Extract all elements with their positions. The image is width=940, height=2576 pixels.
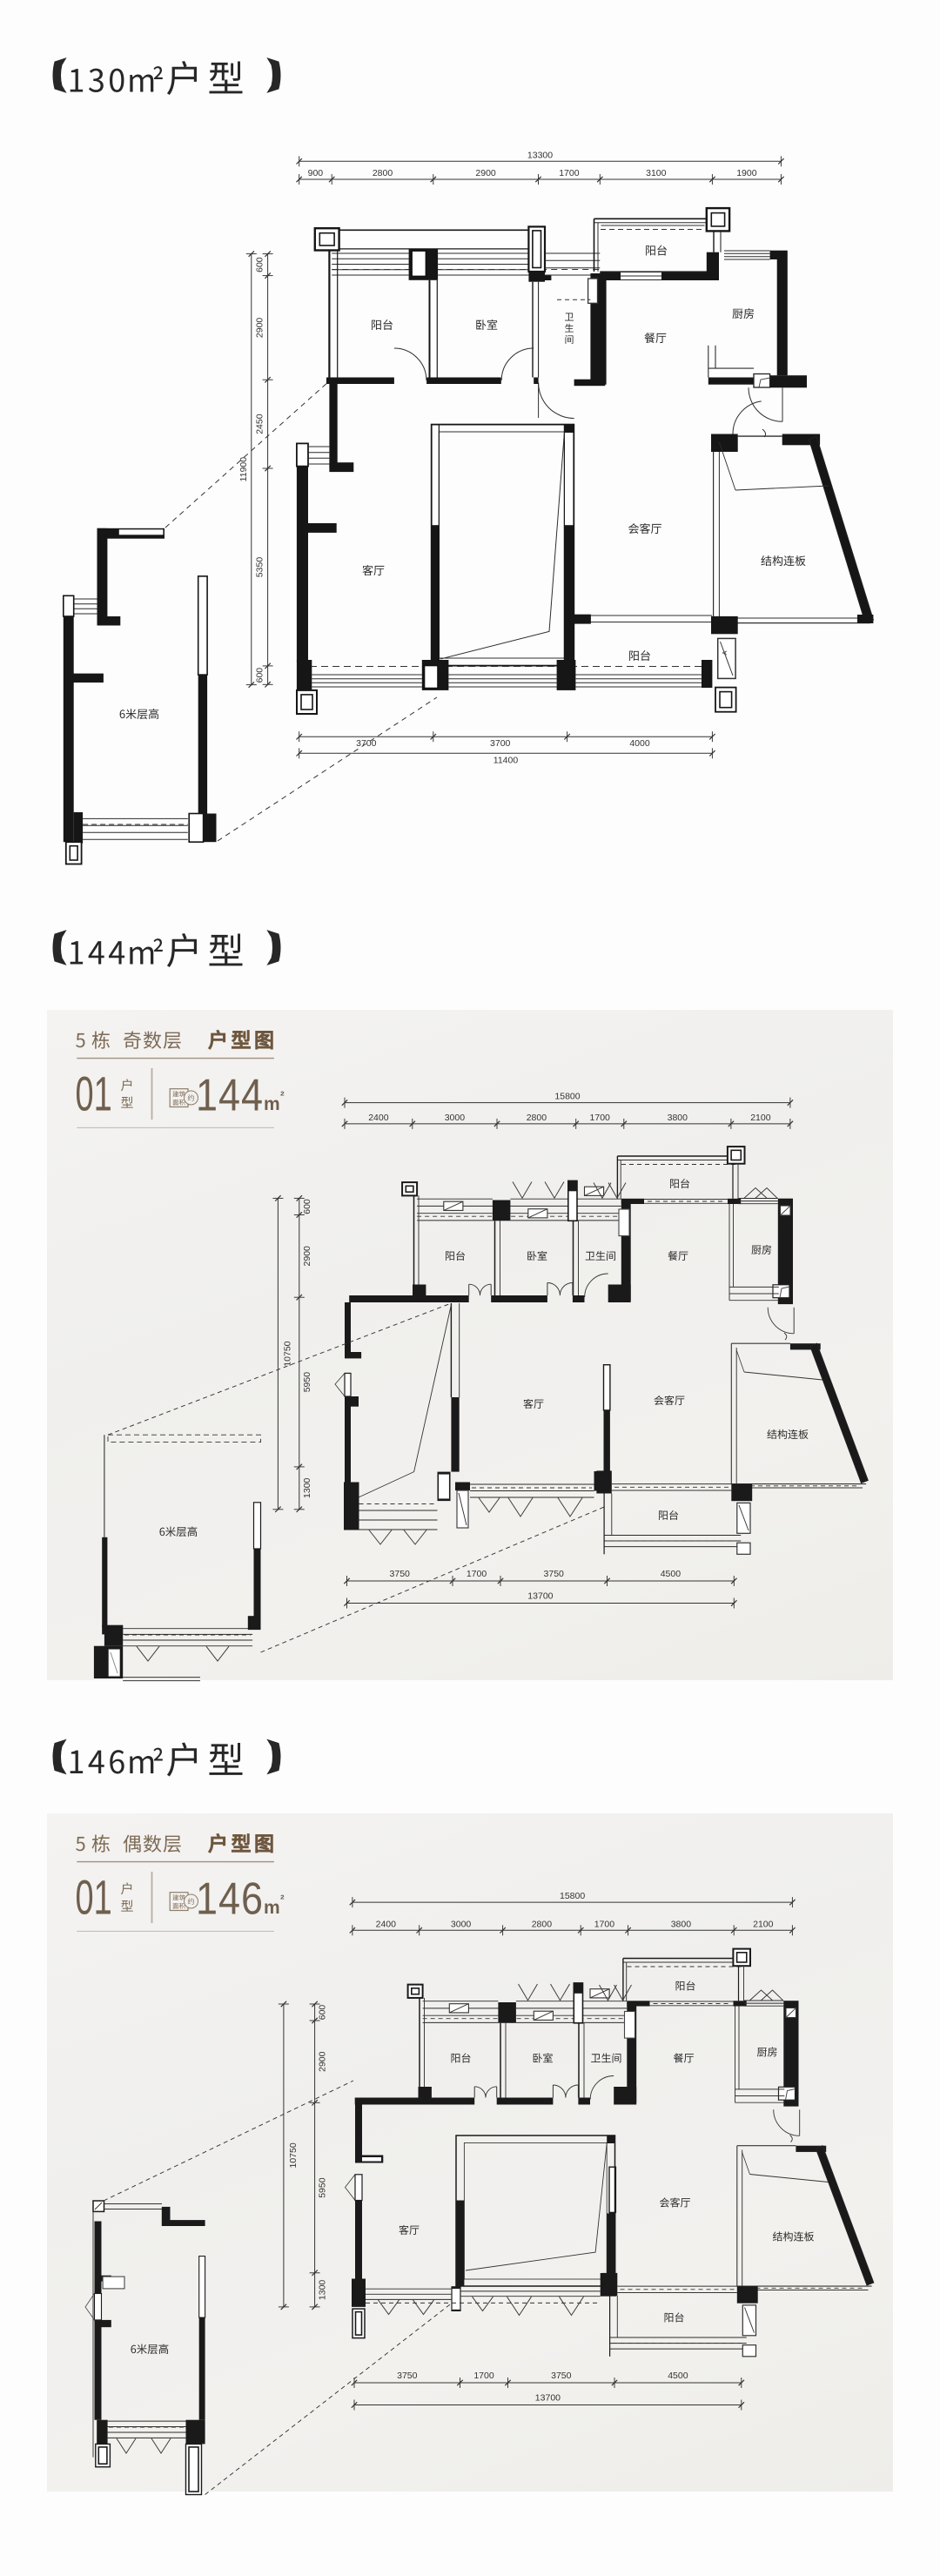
svg-text:1300: 1300 bbox=[318, 2280, 328, 2301]
svg-text:13300: 13300 bbox=[527, 150, 553, 160]
svg-text:3750: 3750 bbox=[390, 1569, 411, 1579]
svg-text:2400: 2400 bbox=[368, 1113, 389, 1123]
svg-text:10750: 10750 bbox=[282, 1341, 292, 1366]
svg-text:4500: 4500 bbox=[668, 2371, 688, 2381]
svg-text:01: 01 bbox=[76, 1067, 112, 1121]
svg-text:600: 600 bbox=[255, 668, 265, 683]
svg-text:2100: 2100 bbox=[753, 1919, 774, 1929]
svg-text:m: m bbox=[264, 1898, 280, 1918]
svg-text:2900: 2900 bbox=[475, 168, 496, 178]
svg-text:13700: 13700 bbox=[527, 1591, 553, 1602]
svg-text:A: A bbox=[721, 650, 728, 655]
svg-text:2400: 2400 bbox=[376, 1919, 397, 1929]
svg-text:2900: 2900 bbox=[255, 318, 265, 339]
svg-text:2900: 2900 bbox=[302, 1246, 312, 1267]
svg-text:1300: 1300 bbox=[302, 1477, 312, 1498]
svg-text:5950: 5950 bbox=[302, 1372, 312, 1393]
svg-text:3000: 3000 bbox=[451, 1919, 472, 1929]
svg-text:5350: 5350 bbox=[255, 557, 265, 578]
svg-text:3700: 3700 bbox=[490, 738, 511, 749]
svg-text:144: 144 bbox=[196, 1070, 264, 1120]
svg-text:1700: 1700 bbox=[559, 168, 580, 178]
svg-text:600: 600 bbox=[318, 2005, 328, 2021]
svg-text:1700: 1700 bbox=[590, 1113, 611, 1123]
svg-text:²: ² bbox=[280, 1892, 285, 1906]
svg-text:1700: 1700 bbox=[594, 1919, 615, 1929]
svg-text:01: 01 bbox=[76, 1871, 112, 1925]
svg-text:3750: 3750 bbox=[544, 1569, 565, 1579]
svg-text:2800: 2800 bbox=[527, 1113, 547, 1123]
svg-text:2100: 2100 bbox=[750, 1113, 771, 1123]
svg-text:3800: 3800 bbox=[668, 1113, 688, 1123]
svg-text:900: 900 bbox=[308, 168, 324, 178]
svg-text:1700: 1700 bbox=[473, 2371, 494, 2381]
svg-text:11400: 11400 bbox=[493, 755, 519, 765]
svg-text:600: 600 bbox=[302, 1199, 312, 1214]
svg-text:10750: 10750 bbox=[288, 2142, 299, 2168]
svg-text:4500: 4500 bbox=[661, 1569, 681, 1579]
svg-text:m: m bbox=[264, 1094, 280, 1114]
svg-text:3000: 3000 bbox=[445, 1113, 466, 1123]
svg-text:2900: 2900 bbox=[318, 2051, 328, 2072]
svg-text:3100: 3100 bbox=[646, 168, 667, 178]
svg-text:600: 600 bbox=[255, 257, 265, 272]
svg-text:146: 146 bbox=[196, 1873, 264, 1924]
svg-text:3750: 3750 bbox=[397, 2371, 418, 2381]
svg-text:3800: 3800 bbox=[671, 1919, 692, 1929]
svg-text:2800: 2800 bbox=[532, 1919, 553, 1929]
svg-text:²: ² bbox=[280, 1088, 285, 1102]
svg-text:5950: 5950 bbox=[318, 2177, 328, 2198]
svg-text:1700: 1700 bbox=[467, 1569, 487, 1579]
svg-text:4000: 4000 bbox=[629, 738, 650, 749]
svg-text:15800: 15800 bbox=[560, 1891, 585, 1901]
svg-text:2800: 2800 bbox=[373, 168, 393, 178]
svg-text:2450: 2450 bbox=[255, 414, 265, 434]
svg-text:1900: 1900 bbox=[736, 168, 757, 178]
svg-text:3700: 3700 bbox=[356, 738, 377, 749]
svg-text:15800: 15800 bbox=[554, 1092, 580, 1102]
svg-text:13700: 13700 bbox=[535, 2393, 561, 2404]
svg-text:3750: 3750 bbox=[551, 2371, 572, 2381]
